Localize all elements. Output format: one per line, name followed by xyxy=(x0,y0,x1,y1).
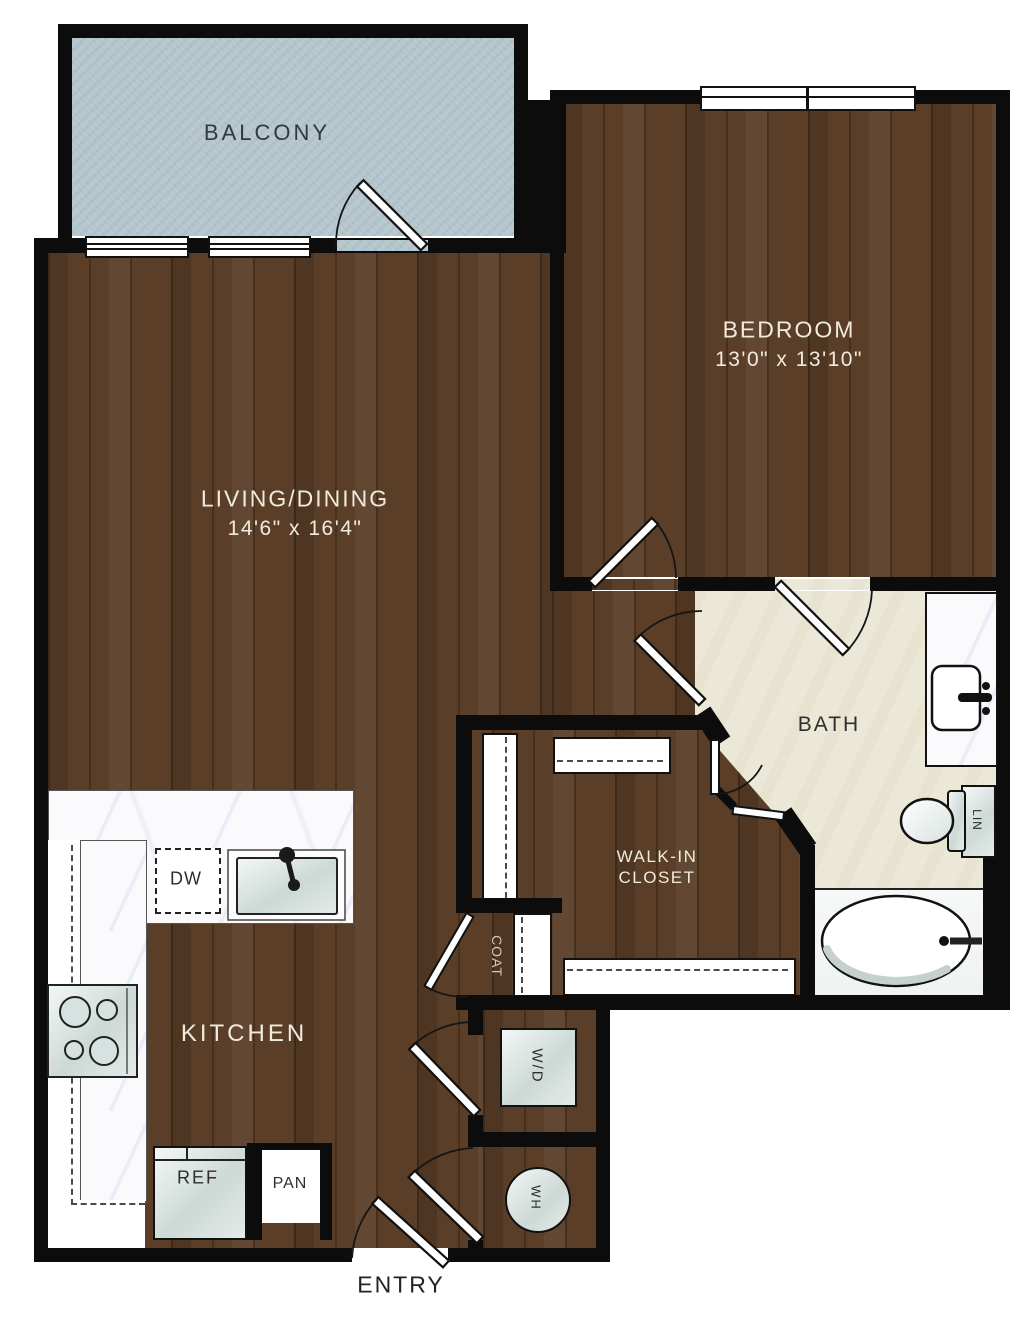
faucet-handle xyxy=(982,682,990,690)
burner xyxy=(90,1037,118,1065)
door-swing-arc xyxy=(412,1022,470,1046)
balcony-label: BALCONY xyxy=(204,120,330,146)
washer-dryer-label: W/D xyxy=(529,1048,546,1083)
balcony-door-leaf xyxy=(357,180,427,250)
bedroom-label: BEDROOM xyxy=(723,317,856,344)
water-heater-label: WH xyxy=(529,1185,544,1211)
plan-overlay xyxy=(0,0,1033,1336)
closet-bath-door-leaf xyxy=(711,740,719,794)
entry-label: ENTRY xyxy=(357,1272,445,1299)
entry-door-leaf xyxy=(372,1197,449,1267)
door-swing-arc xyxy=(638,611,702,637)
faucet-handle xyxy=(982,707,990,715)
burner xyxy=(60,997,90,1027)
door-swing-arc xyxy=(428,988,468,997)
burner xyxy=(97,1000,117,1020)
door-swing-arc xyxy=(846,590,872,652)
toilet-bowl xyxy=(901,799,953,843)
coat-closet-label: COAT xyxy=(489,935,505,977)
hall-bath-door-leaf xyxy=(634,634,705,705)
diagonal-wall xyxy=(783,813,808,849)
bedroom-door-leaf xyxy=(589,518,658,587)
closet-bath-door-leaf xyxy=(733,806,785,820)
vanity-faucet xyxy=(958,693,992,702)
dishwasher-label: DW xyxy=(170,869,202,890)
coat-door-leaf xyxy=(425,913,474,990)
burner xyxy=(65,1041,83,1059)
door-swing-arc xyxy=(655,521,676,578)
diagonal-wall xyxy=(702,712,722,742)
door-swing-arc xyxy=(352,1200,376,1258)
bath-label: BATH xyxy=(798,713,860,737)
door-swing-arc xyxy=(336,183,360,246)
kitchen-label: KITCHEN xyxy=(181,1020,307,1048)
linen-label: LIN xyxy=(970,809,984,831)
washer-dryer-door-leaf xyxy=(409,1043,480,1116)
pantry-label: PAN xyxy=(273,1175,308,1193)
living-dining-dimensions: 14'6" x 16'4" xyxy=(228,517,363,541)
tub-faucet xyxy=(939,936,949,946)
refrigerator-label: REF xyxy=(177,1168,219,1189)
door-swing-arc xyxy=(412,1148,473,1174)
water-heater-door-leaf xyxy=(409,1171,484,1243)
bath-door-leaf xyxy=(775,581,849,655)
stove xyxy=(48,985,137,1077)
living-dining-label: LIVING/DINING xyxy=(201,486,389,513)
walk-in-closet-label-line1: WALK-IN xyxy=(617,847,698,867)
bedroom-dimensions: 13'0" x 13'10" xyxy=(715,348,863,372)
kitchen-faucet xyxy=(288,879,300,891)
floor-plan: BALCONY BEDROOM 13'0" x 13'10" LIVING/DI… xyxy=(0,0,1033,1336)
walk-in-closet-label-line2: CLOSET xyxy=(618,868,695,888)
